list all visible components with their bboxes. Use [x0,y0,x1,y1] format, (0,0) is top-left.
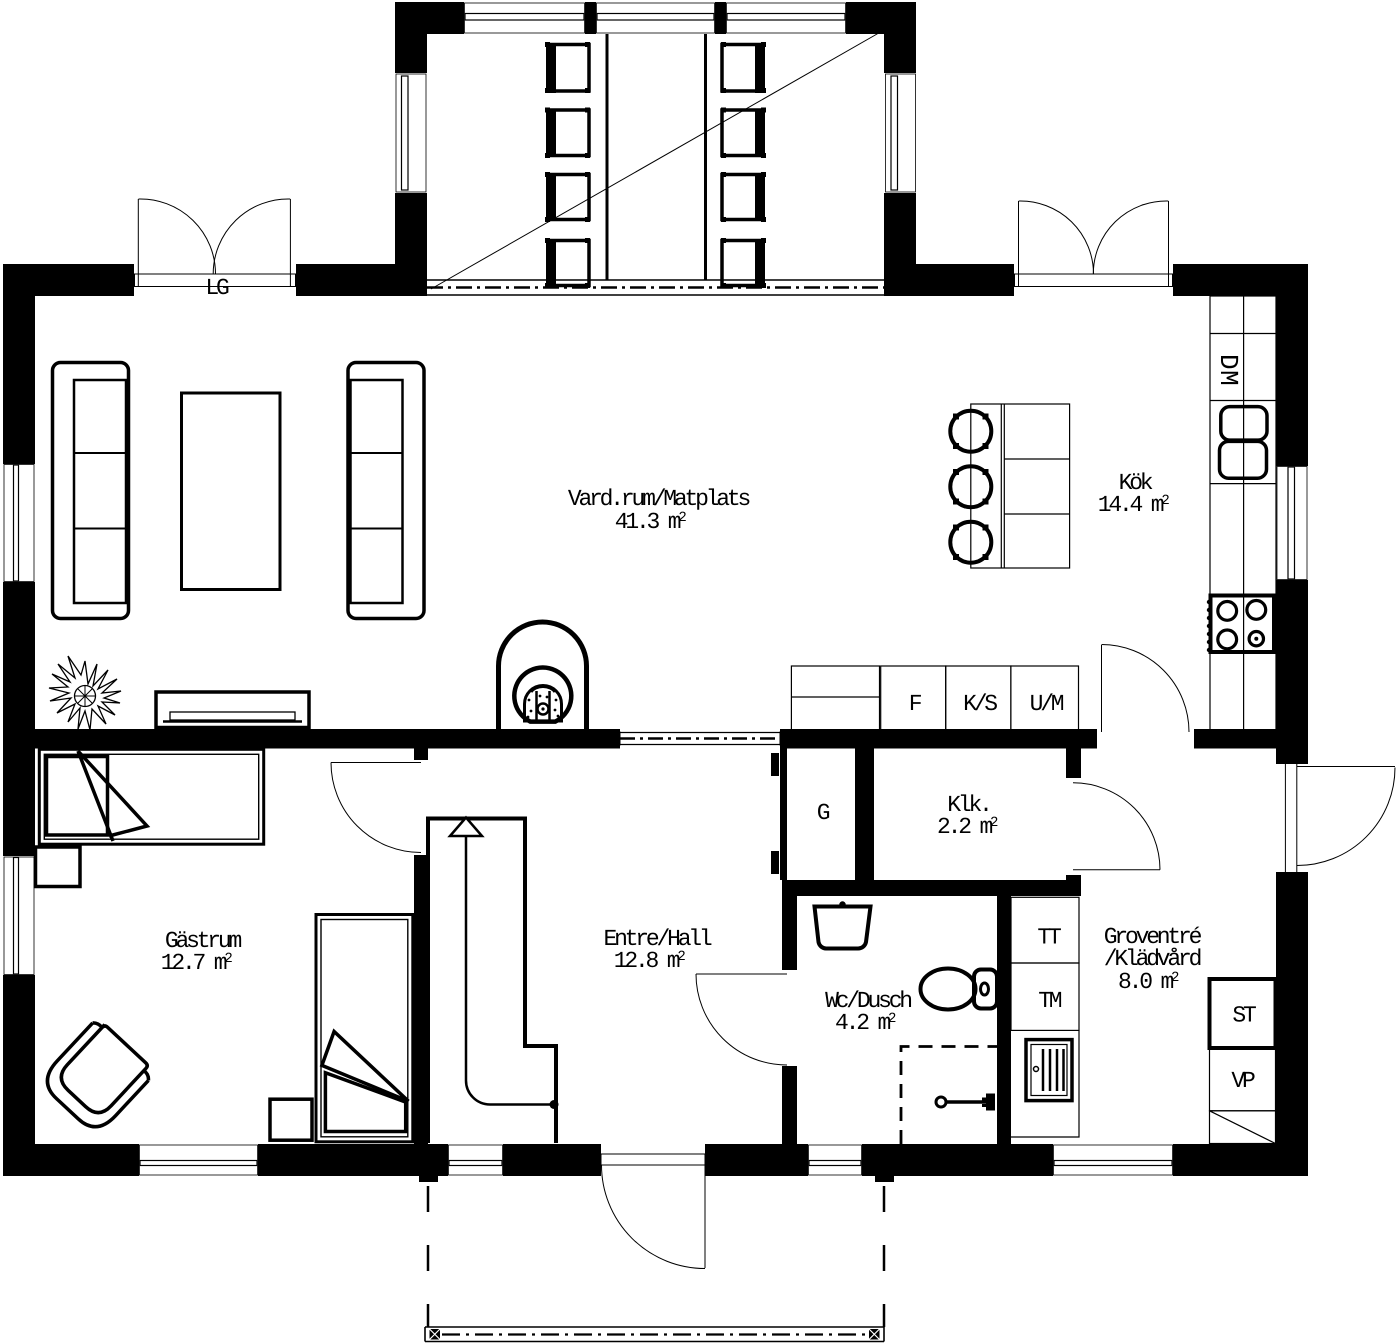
svg-text:LG: LG [205,275,229,301]
svg-text:TT: TT [1037,925,1061,951]
svg-text:12.8 m2: 12.8 m2 [614,948,686,974]
svg-text:ST: ST [1232,1003,1256,1029]
svg-text:TM: TM [1038,988,1062,1014]
svg-text:U/M: U/M [1030,691,1064,717]
svg-text:2.2 m2: 2.2 m2 [937,814,998,840]
svg-text:14.4 m2: 14.4 m2 [1098,492,1170,518]
svg-text:VP: VP [1231,1068,1255,1094]
svg-text:4.2 m2: 4.2 m2 [835,1010,896,1036]
svg-text:12.7 m2: 12.7 m2 [161,950,233,976]
svg-text:DM: DM [1213,354,1243,386]
svg-text:K/S: K/S [963,691,997,717]
svg-text:8.0 m2: 8.0 m2 [1118,969,1179,995]
svg-text:41.3 m2: 41.3 m2 [615,509,687,535]
